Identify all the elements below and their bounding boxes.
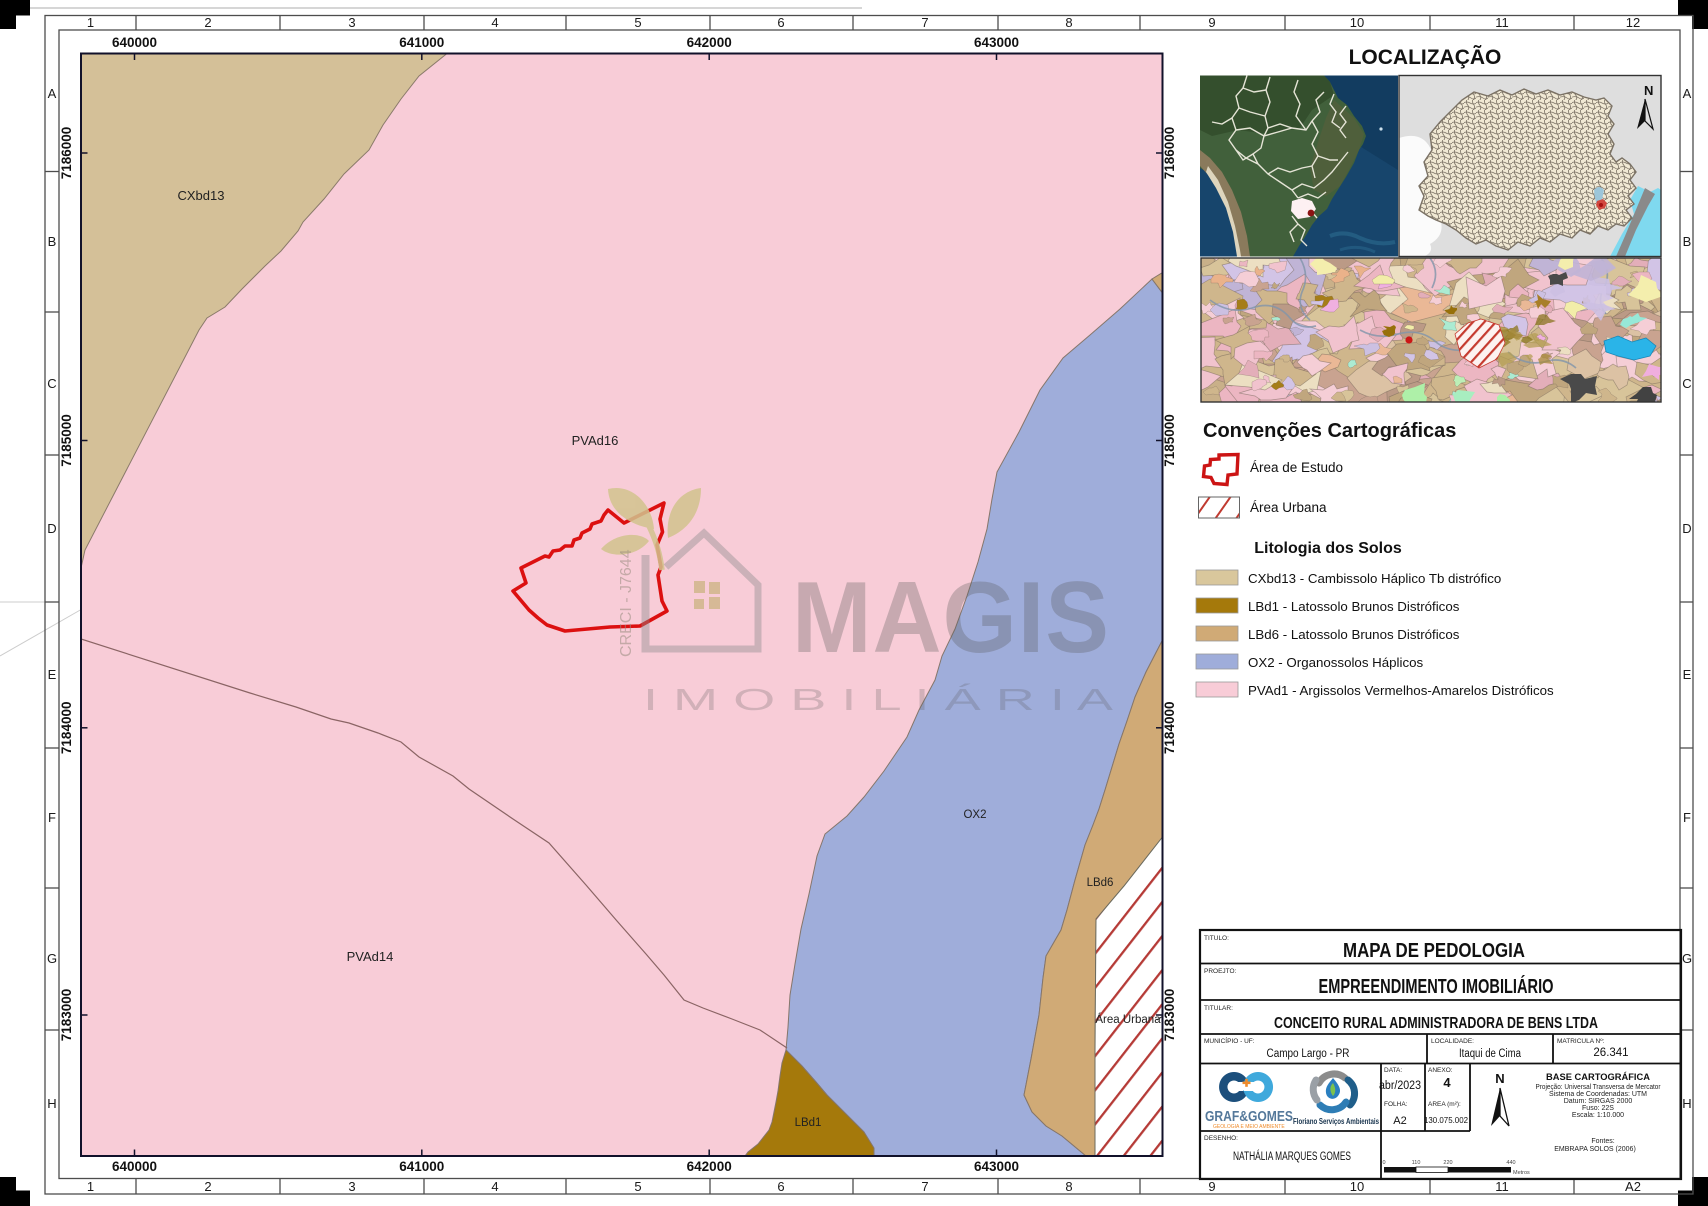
svg-text:FOLHA:: FOLHA: (1384, 1101, 1408, 1108)
svg-text:EMPREENDIMENTO IMOBILIÁRIO: EMPREENDIMENTO IMOBILIÁRIO (1319, 975, 1554, 998)
svg-text:5: 5 (634, 1179, 641, 1194)
svg-text:TITULO:: TITULO: (1204, 935, 1229, 942)
svg-text:G: G (1682, 951, 1692, 966)
svg-text:LBd6: LBd6 (1087, 877, 1114, 889)
svg-text:A2: A2 (1625, 1179, 1641, 1194)
svg-text:LOCALIZAÇÃO: LOCALIZAÇÃO (1349, 46, 1502, 69)
svg-text:GRAF&GOMES: GRAF&GOMES (1205, 1109, 1293, 1125)
svg-text:N: N (1644, 83, 1653, 98)
svg-text:642000: 642000 (687, 35, 732, 50)
svg-text:CONCEITO RURAL ADMINISTRADORA: CONCEITO RURAL ADMINISTRADORA DE BENS LT… (1274, 1015, 1598, 1032)
svg-text:MATRICULA Nº:: MATRICULA Nº: (1557, 1038, 1605, 1045)
svg-text:DESENHO:: DESENHO: (1204, 1135, 1238, 1142)
svg-text:7183000: 7183000 (59, 989, 74, 1042)
svg-text:EMBRAPA SOLOS (2006): EMBRAPA SOLOS (2006) (1554, 1146, 1636, 1153)
svg-text:LBd1 - Latossolo Brunos Distró: LBd1 - Latossolo Brunos Distróficos (1248, 599, 1460, 614)
svg-text:CXbd13 - Cambissolo Háplico Tb: CXbd13 - Cambissolo Háplico Tb distrófic… (1248, 571, 1501, 586)
svg-text:PROEJTO:: PROEJTO: (1204, 968, 1237, 975)
svg-text:G: G (47, 951, 57, 966)
svg-text:MAGIS: MAGIS (792, 562, 1110, 674)
svg-text:H: H (1682, 1096, 1691, 1111)
svg-text:abr/2023: abr/2023 (1379, 1080, 1421, 1092)
svg-text:12: 12 (1626, 15, 1640, 30)
svg-text:Fuso: 22S: Fuso: 22S (1582, 1105, 1614, 1112)
svg-text:440: 440 (1506, 1160, 1515, 1166)
svg-text:110: 110 (1412, 1160, 1421, 1166)
svg-text:26.341: 26.341 (1593, 1047, 1628, 1059)
svg-text:TITULAR:: TITULAR: (1204, 1005, 1233, 1012)
svg-text:E: E (1683, 667, 1692, 682)
svg-text:Litologia dos Solos: Litologia dos Solos (1254, 540, 1402, 557)
svg-text:6: 6 (777, 1179, 784, 1194)
svg-text:643000: 643000 (974, 1159, 1019, 1174)
svg-text:Fontes:: Fontes: (1591, 1138, 1614, 1145)
svg-text:C: C (1682, 376, 1691, 391)
svg-text:Sistema de Coordenadas: UTM: Sistema de Coordenadas: UTM (1549, 1091, 1647, 1098)
svg-text:130.075.002: 130.075.002 (1424, 1116, 1469, 1125)
svg-text:9: 9 (1208, 15, 1215, 30)
svg-text:PVAd1 - Argissolos Vermelhos-A: PVAd1 - Argissolos Vermelhos-Amarelos Di… (1248, 683, 1554, 698)
svg-text:AREA (m²):: AREA (m²): (1428, 1101, 1461, 1108)
svg-text:8: 8 (1065, 1179, 1072, 1194)
svg-text:11: 11 (1495, 1179, 1509, 1194)
svg-text:ANEXO:: ANEXO: (1428, 1067, 1453, 1074)
svg-text:9: 9 (1208, 1179, 1215, 1194)
svg-text:3: 3 (348, 15, 355, 30)
svg-text:Escala: 1:10.000: Escala: 1:10.000 (1572, 1112, 1624, 1119)
svg-text:6: 6 (777, 15, 784, 30)
svg-text:LOCALIDADE:: LOCALIDADE: (1431, 1038, 1474, 1045)
svg-text:641000: 641000 (399, 35, 444, 50)
svg-text:D: D (47, 521, 56, 536)
svg-text:N: N (1495, 1071, 1504, 1086)
svg-text:5: 5 (634, 15, 641, 30)
svg-text:CXbd13: CXbd13 (178, 188, 225, 203)
svg-text:A: A (1683, 86, 1692, 101)
svg-text:Itaqui de Cima: Itaqui de Cima (1459, 1048, 1521, 1060)
svg-text:7183000: 7183000 (1162, 989, 1177, 1042)
svg-text:11: 11 (1495, 15, 1509, 30)
svg-text:640000: 640000 (112, 1159, 157, 1174)
svg-text:8: 8 (1065, 15, 1072, 30)
svg-text:641000: 641000 (399, 1159, 444, 1174)
svg-text:7184000: 7184000 (1162, 702, 1177, 755)
svg-text:Convenções Cartográficas: Convenções Cartográficas (1203, 420, 1456, 442)
svg-text:Campo Largo - PR: Campo Largo - PR (1267, 1048, 1350, 1060)
svg-text:DATA:: DATA: (1384, 1067, 1402, 1074)
svg-text:10: 10 (1350, 15, 1364, 30)
svg-text:GEOLOGIA E MEIO AMBIENTE: GEOLOGIA E MEIO AMBIENTE (1213, 1124, 1285, 1130)
svg-text:Metros: Metros (1513, 1170, 1530, 1176)
svg-text:4: 4 (491, 1179, 498, 1194)
svg-text:OX2 - Organossolos Háplicos: OX2 - Organossolos Háplicos (1248, 655, 1424, 670)
svg-text:4: 4 (1443, 1075, 1451, 1090)
svg-text:H: H (47, 1096, 56, 1111)
svg-text:7: 7 (921, 1179, 928, 1194)
svg-text:Datum: SIRGAS 2000: Datum: SIRGAS 2000 (1564, 1098, 1633, 1105)
svg-text:Projeção: Universal Transversa: Projeção: Universal Transversa de Mercat… (1536, 1084, 1662, 1091)
svg-text:Floriano Serviços Ambientais: Floriano Serviços Ambientais (1293, 1117, 1379, 1126)
svg-text:643000: 643000 (974, 35, 1019, 50)
svg-text:Área Urbana: Área Urbana (1250, 500, 1327, 515)
svg-text:MAPA DE PEDOLOGIA: MAPA DE PEDOLOGIA (1343, 940, 1525, 962)
svg-text:C: C (47, 376, 56, 391)
svg-text:CRECI - J7644: CRECI - J7644 (618, 549, 635, 657)
svg-text:7185000: 7185000 (1162, 414, 1177, 467)
svg-text:LBd6 - Latossolo Brunos Distró: LBd6 - Latossolo Brunos Distróficos (1248, 627, 1460, 642)
svg-text:1: 1 (87, 1179, 94, 1194)
svg-text:OX2: OX2 (963, 809, 986, 821)
svg-text:NATHÁLIA MARQUES GOMES: NATHÁLIA MARQUES GOMES (1233, 1150, 1351, 1163)
svg-text:I M O B I L I Á R I A: I M O B I L I Á R I A (643, 682, 1114, 717)
svg-text:B: B (48, 234, 57, 249)
svg-text:640000: 640000 (112, 35, 157, 50)
svg-text:F: F (1683, 810, 1691, 825)
svg-text:2: 2 (204, 1179, 211, 1194)
svg-text:3: 3 (348, 1179, 355, 1194)
svg-text:2: 2 (204, 15, 211, 30)
svg-text:D: D (1682, 521, 1691, 536)
svg-text:642000: 642000 (687, 1159, 732, 1174)
svg-text:7184000: 7184000 (59, 702, 74, 755)
svg-text:A: A (48, 86, 57, 101)
svg-text:10: 10 (1350, 1179, 1364, 1194)
svg-text:E: E (48, 667, 57, 682)
svg-text:LBd1: LBd1 (795, 1117, 822, 1129)
svg-text:B: B (1683, 234, 1692, 249)
svg-text:0: 0 (1382, 1160, 1385, 1166)
svg-text:MUNICÍPIO - UF:: MUNICÍPIO - UF: (1204, 1036, 1255, 1045)
svg-text:BASE CARTOGRÁFICA: BASE CARTOGRÁFICA (1546, 1072, 1651, 1082)
svg-text:220: 220 (1443, 1160, 1452, 1166)
svg-text:7186000: 7186000 (59, 127, 74, 180)
svg-text:PVAd14: PVAd14 (347, 949, 394, 964)
svg-text:A2: A2 (1393, 1115, 1406, 1127)
svg-text:4: 4 (491, 15, 498, 30)
svg-text:7185000: 7185000 (59, 414, 74, 467)
svg-text:7: 7 (921, 15, 928, 30)
svg-text:Área de Estudo: Área de Estudo (1250, 460, 1343, 475)
svg-text:7186000: 7186000 (1162, 127, 1177, 180)
svg-text:F: F (48, 810, 56, 825)
svg-text:1: 1 (87, 15, 94, 30)
svg-text:Área Urbana: Área Urbana (1095, 1013, 1161, 1026)
svg-text:PVAd16: PVAd16 (572, 433, 619, 448)
